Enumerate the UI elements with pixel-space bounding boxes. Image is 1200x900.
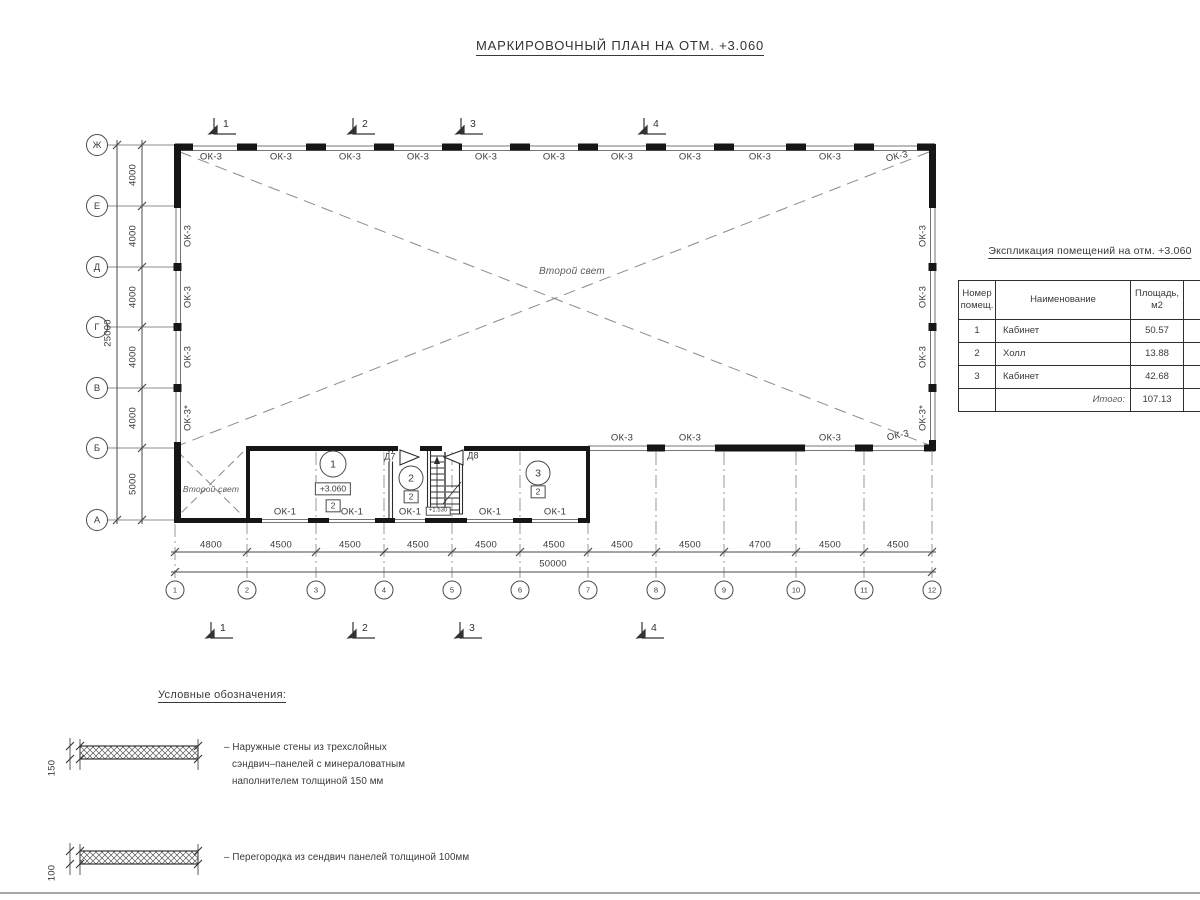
legend-text-line: сэндвич–панелей с минераловатным <box>232 759 405 770</box>
table-cell <box>1184 389 1200 411</box>
axis-bubble-col: 3 <box>307 581 326 600</box>
legend-thickness-label: 150 <box>47 760 57 776</box>
table-header-cell: Капо <box>1184 281 1200 320</box>
legend-thickness-label: 100 <box>47 865 57 881</box>
axis-bubble-col: 6 <box>511 581 530 600</box>
window-label: ОК-3* <box>183 405 193 431</box>
legend-text-line: – Перегородка из сендвич панелей толщино… <box>224 852 469 863</box>
drawing-sheet: МАРКИРОВОЧНЫЙ ПЛАН НА ОТМ. +3.060 ОК-3 О… <box>0 0 1200 900</box>
dim-label: 4000 <box>128 407 138 429</box>
dim-label: 4500 <box>679 540 701 550</box>
section-label: 1 <box>220 623 226 634</box>
door-swing-d7 <box>400 450 419 465</box>
category-mark: 2 <box>326 499 341 512</box>
table-cell: 50.57 <box>1131 320 1184 343</box>
void-label: Второй свет <box>539 267 605 277</box>
window-label: ОК-3 <box>611 152 633 162</box>
table-cell: 3 <box>959 366 996 389</box>
axis-bubble-col: 1 <box>166 581 185 600</box>
axis-bubble-col: 10 <box>787 581 806 600</box>
hall-void-cross <box>180 152 929 445</box>
table-cell: 1 <box>959 320 996 343</box>
dim-label: 4500 <box>819 540 841 550</box>
table-cell <box>959 389 996 411</box>
window-label: ОК-3 <box>611 433 633 443</box>
door-label: Д7 <box>384 453 396 462</box>
axis-bubble-col: 4 <box>375 581 394 600</box>
window-label: ОК-3 <box>918 286 928 308</box>
window-label: ОК-3 <box>679 433 701 443</box>
section-label: 3 <box>470 119 476 130</box>
table-header-cell: Наименование <box>996 281 1131 320</box>
window-label: ОК-3* <box>918 405 928 431</box>
dim-label: 4000 <box>128 225 138 247</box>
window-label: ОК-3 <box>819 152 841 162</box>
window-label: ОК-3 <box>270 152 292 162</box>
category-mark: 2 <box>404 490 419 503</box>
legend-text-line: – Наружные стены из трехслойных <box>224 742 387 753</box>
dim-total-label: 50000 <box>539 559 566 569</box>
section-label: 4 <box>651 623 657 634</box>
table-cell <box>1184 366 1200 389</box>
dim-label: 4700 <box>749 540 771 550</box>
axis-bubble-row: А <box>86 509 108 531</box>
axis-bubble-row: Д <box>86 256 108 278</box>
axis-bubble-row: Ж <box>86 134 108 156</box>
dim-label: 5000 <box>128 473 138 495</box>
dim-label: 4000 <box>128 286 138 308</box>
legend-title: Условные обозначения: <box>158 689 286 703</box>
axis-bubble-col: 9 <box>715 581 734 600</box>
dim-label: 4500 <box>475 540 497 550</box>
void-label: Второй свет <box>183 485 239 494</box>
plan-linework <box>0 0 1200 900</box>
axis-bubble-row: Е <box>86 195 108 217</box>
legend-wall-symbol-100 <box>66 843 202 875</box>
table-cell <box>1184 320 1200 343</box>
axis-bubble-col: 5 <box>443 581 462 600</box>
section-label: 2 <box>362 119 368 130</box>
axis-bubble-col: 7 <box>579 581 598 600</box>
room-number-circle: 2 <box>399 466 424 491</box>
table-title: Экспликация помещений на отм. +3.060 <box>988 245 1191 259</box>
dim-label: 4000 <box>128 346 138 368</box>
dim-label: 4500 <box>270 540 292 550</box>
table-header-cell: Площадь,м2 <box>1131 281 1184 320</box>
page-title: МАРКИРОВОЧНЫЙ ПЛАН НА ОТМ. +3.060 <box>476 38 764 56</box>
level-mark: +3.060 <box>315 482 351 495</box>
window-label: ОК-1 <box>341 507 363 517</box>
window-label: ОК-1 <box>479 507 501 517</box>
window-label: ОК-3 <box>339 152 361 162</box>
table-total-label: Итого: <box>996 389 1131 411</box>
dim-label: 4800 <box>200 540 222 550</box>
table-cell: 42.68 <box>1131 366 1184 389</box>
dim-label: 4000 <box>128 164 138 186</box>
table-cell <box>1184 343 1200 366</box>
axis-bubble-row: Б <box>86 437 108 459</box>
axis-bubble-col: 2 <box>238 581 257 600</box>
table-cell: 2 <box>959 343 996 366</box>
table-cell: Кабинет <box>996 366 1131 389</box>
dim-label: 4500 <box>339 540 361 550</box>
window-label: ОК-3 <box>183 346 193 368</box>
axis-bubble-row: В <box>86 377 108 399</box>
axis-bubble-col: 12 <box>923 581 942 600</box>
dim-label: 4500 <box>887 540 909 550</box>
dim-total-label: 25000 <box>103 319 113 346</box>
door-label: Д8 <box>467 452 479 461</box>
dim-label: 4500 <box>407 540 429 550</box>
legend-text-line: наполнителем толщиной 150 мм <box>232 776 383 787</box>
table-cell: Кабинет <box>996 320 1131 343</box>
room-number-circle: 1 <box>320 451 347 478</box>
table-cell: 13.88 <box>1131 343 1184 366</box>
dimension-lines-left <box>113 140 146 524</box>
table-total-value: 107.13 <box>1131 389 1184 411</box>
window-label: ОК-3 <box>918 225 928 247</box>
window-label: ОК-3 <box>543 152 565 162</box>
table-header-cell: Номерпомещ. <box>959 281 996 320</box>
section-cut-marks <box>206 118 666 638</box>
window-label: ОК-3 <box>407 152 429 162</box>
window-label: ОК-3 <box>475 152 497 162</box>
room-number-circle: 3 <box>526 461 551 486</box>
axis-bubble-col: 8 <box>647 581 666 600</box>
window-label: ОК-3 <box>819 433 841 443</box>
explication-table: Номерпомещ. Наименование Площадь,м2 Капо… <box>958 280 1200 412</box>
door-swing-d8 <box>444 450 463 465</box>
hall-walls <box>174 144 937 524</box>
section-label: 3 <box>469 623 475 634</box>
window-label: ОК-1 <box>399 507 421 517</box>
dim-label: 4500 <box>543 540 565 550</box>
legend-wall-symbol-150 <box>66 738 202 770</box>
window-label: ОК-3 <box>918 346 928 368</box>
window-label: ОК-3 <box>749 152 771 162</box>
window-label: ОК-3 <box>200 152 222 162</box>
window-label: ОК-3 <box>183 225 193 247</box>
window-label: ОК-3 <box>679 152 701 162</box>
window-label: ОК-1 <box>274 507 296 517</box>
window-label: ОК-1 <box>544 507 566 517</box>
section-label: 4 <box>653 119 659 130</box>
window-label: ОК-3 <box>183 286 193 308</box>
dim-label: 4500 <box>611 540 633 550</box>
axis-bubble-col: 11 <box>855 581 874 600</box>
stair-level-mark: +1.530 <box>426 507 451 516</box>
section-label: 2 <box>362 623 368 634</box>
table-cell: Холл <box>996 343 1131 366</box>
category-mark: 2 <box>531 485 546 498</box>
section-label: 1 <box>223 119 229 130</box>
